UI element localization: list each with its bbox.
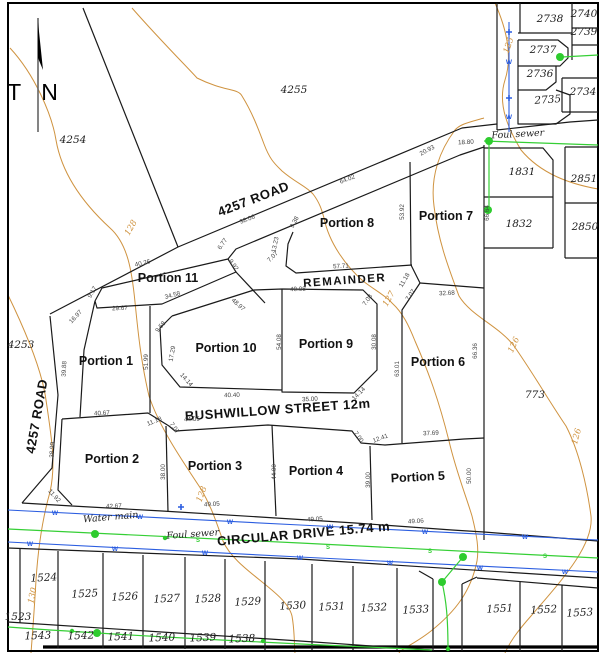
lot-label: 1831 [509,166,536,178]
lot-label: 1524 [30,571,57,584]
dimension-label: 7.07 [266,250,280,264]
dimension-label: 66.36 [472,343,479,359]
dimension-label: 12.41 [372,432,390,444]
dimension-label: 32.68 [439,290,456,298]
dimension-label: 7.00 [352,430,365,444]
lot-label: 1526 [111,590,139,603]
water-valve-icon [178,504,184,510]
dimension-label: 20.93 [419,144,437,158]
water-marker: W [387,560,394,567]
dimension-label: 49.05 [204,500,221,508]
lot-label: 1551 [486,602,513,615]
portion-label: Portion 9 [299,337,353,351]
water-marker: W [27,541,34,548]
lot-label: 4255 [280,84,308,96]
lot-label: 1527 [153,592,181,605]
lot-label: 1539 [189,632,216,645]
water-marker: W [112,546,119,553]
dimension-label: 49.05 [307,515,324,523]
sewer-manhole-icon [556,53,564,61]
dimension-label: 29.67 [112,305,129,313]
dimension-label: 44.00 [271,464,278,480]
sewer-manhole-icon [91,530,99,538]
portion-label: Portion 5 [390,469,445,486]
dimension-label: 44.05 [184,416,201,424]
lot-label: 1533 [402,603,430,616]
lot-label: 1532 [360,601,388,614]
dimension-label: 30.08 [371,334,378,350]
water-marker: W [506,114,513,121]
lot-label: 2734 [569,86,597,98]
dimension-label: 50.00 [466,468,473,484]
dimension-label: 38.99 [49,441,57,458]
water-valve-icon [506,95,512,101]
water-marker: W [327,524,334,531]
road-label: 4257 ROAD [23,378,51,455]
contour-label: 126 [570,427,584,446]
lot-label: 1530 [279,599,307,612]
utility-label: Water main [83,510,139,526]
lot-label: 1553 [566,606,594,619]
map-labels: 4257 ROAD4257 ROADBUSHWILLOW STREET 12mC… [5,8,599,645]
water-marker: W [227,519,234,526]
water-marker: W [297,555,304,562]
remainder-label: REMAINDER [303,272,387,290]
dimension-label: 49.06 [408,517,425,525]
lot-label: 1528 [194,592,222,605]
portion-label: Portion 10 [195,341,256,355]
portion-label: Portion 2 [85,452,139,466]
dimension-label: 18.80 [458,139,475,147]
road-label: BUSHWILLOW STREET 12m [184,396,371,424]
lot-label: 2851 [570,173,598,185]
utility-label: Foul sewer [165,527,221,542]
lot-label: 1540 [148,632,175,645]
dimension-label: 35.00 [302,396,319,404]
lot-label: 2739 [570,26,598,38]
dimension-label: 11.18 [398,271,412,288]
dimension-label: 11.18 [146,415,163,427]
dimension-label: 42.67 [106,503,123,511]
dimension-label: 54.08 [276,334,283,350]
portion-label: Portion 7 [419,209,473,223]
water-valve-icon [506,29,512,35]
lot-label: 2736 [526,68,554,80]
dimension-label: 57.71 [333,263,350,271]
cadastral-map: T N 4257 ROAD4257 ROADBUSHWILLOW STREET … [0,0,602,653]
sewer-manhole-icon [459,553,467,561]
dimension-label: 40.26 [134,258,151,268]
dimension-label: 17.29 [168,345,178,362]
water-marker: W [477,565,484,572]
lot-label: 2735 [533,93,562,107]
sewer-marker: S [196,538,200,544]
road-label: CIRCULAR DRIVE 15.74 m [217,518,391,548]
lot-label: 2850 [571,221,599,233]
lot-label: 2738 [536,13,564,25]
map-canvas: T N 4257 ROAD4257 ROADBUSHWILLOW STREET … [0,0,602,653]
sewer-manhole-icon [438,578,446,586]
water-marker: W [52,510,59,517]
water-marker: W [202,550,209,557]
water-marker: W [422,529,429,536]
water-marker: W [506,59,513,66]
sewer-marker: S [326,545,330,551]
dimension-label: 66.64 [484,205,491,221]
dimension-label: 6.77 [216,237,229,251]
lot-label: 1531 [318,600,345,613]
dimension-label: 40.67 [94,410,111,418]
water-marker: W [562,569,569,576]
lot-label: 1832 [506,218,533,230]
dimension-label: 38.00 [160,464,167,480]
dimension-label: 64.02 [339,173,357,185]
north-arrow: T N [7,18,65,132]
utility-label: Foul sewer [490,128,546,142]
dimension-label: 37.69 [423,430,440,438]
lot-label: 1542 [67,630,94,643]
lot-label: 1525 [71,587,99,600]
portion-label: Portion 8 [320,216,374,230]
lot-label: 4253 [7,339,35,351]
dimension-label: 39.88 [61,360,69,377]
water-marker: W [137,514,144,521]
lot-label: 2737 [529,44,557,56]
lot-label: 1541 [107,631,134,644]
contour-label: 125 [502,36,517,55]
dimension-label: 63.01 [394,361,401,377]
portion-label: Portion 1 [79,354,133,368]
dimension-label: 48.97 [230,297,247,313]
lot-label: 1552 [530,603,558,616]
lot-label: 1529 [234,595,262,608]
dimension-label: 38.06 [239,213,257,225]
dimension-label: 51.99 [143,354,150,370]
lot-label: 4254 [59,134,87,146]
sewer-manhole-small-icon [446,647,450,651]
contour-label: 130 [26,586,39,605]
dimension-label: 40.40 [224,392,240,400]
lot-label: 2740 [570,8,598,20]
portion-label: Portion 6 [411,355,465,369]
dimension-label: 7.07 [168,421,181,435]
portion-label: Portion 3 [188,459,242,473]
water-marker: W [522,534,529,541]
north-label: T N [7,79,65,105]
lot-label: 1543 [24,630,51,643]
contour-label: 128 [123,218,140,238]
sewer-marker: S [428,549,432,555]
portion-label: Portion 4 [289,464,343,478]
lot-label: 1538 [228,633,255,646]
dimension-label: 39.00 [365,472,372,488]
dimension-label: 13.23 [270,236,280,253]
dimension-label: 40.08 [290,286,306,294]
dimension-label: 14.14 [178,372,194,389]
contour-label: 127 [381,289,398,309]
sewer-marker: S [543,554,547,560]
dimension-label: 9.92 [227,258,240,272]
lot-label: 1523 [5,611,32,623]
dimension-label: 16.97 [68,308,84,325]
dimension-label: 53.92 [399,204,406,220]
sewer-manhole-small-icon [261,639,265,643]
portion-label: Portion 11 [138,271,198,285]
contour-label: 126 [506,335,522,354]
lot-label: 773 [525,389,545,401]
